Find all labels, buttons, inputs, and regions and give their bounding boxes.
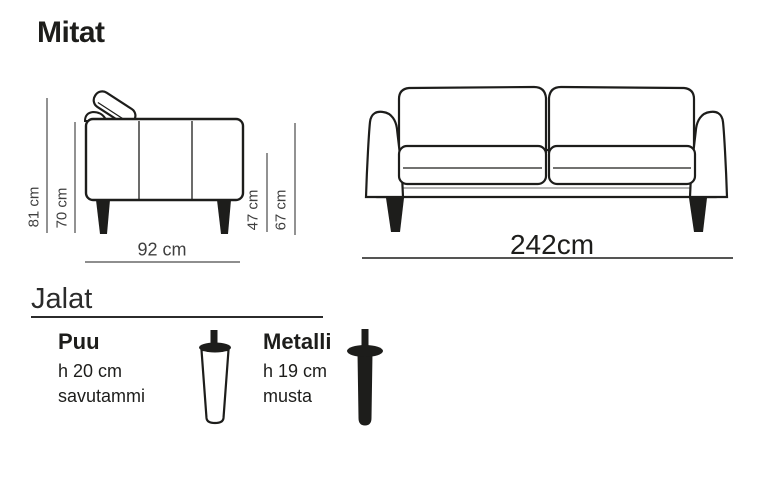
dimensions-page: Mitat 81 cm 70 cm 47 cm 67 cm 92 cm: [0, 0, 777, 502]
leg-option-finish: musta: [263, 387, 331, 405]
sofa-front-drawing: [0, 0, 777, 502]
wood-leg-icon: [197, 329, 233, 429]
leg-option-height: h 20 cm: [58, 362, 145, 380]
leg-option-name: Puu: [58, 331, 145, 353]
leg-option-wood: Puu h 20 cm savutammi: [58, 331, 145, 405]
leg-option-metal: Metalli h 19 cm musta: [263, 331, 331, 405]
leg-option-height: h 19 cm: [263, 362, 331, 380]
front-width-label: 242cm: [510, 229, 594, 261]
leg-option-finish: savutammi: [58, 387, 145, 405]
legs-section-divider: [31, 316, 323, 318]
metal-leg-icon: [345, 329, 385, 431]
legs-section-heading: Jalat: [31, 283, 92, 316]
leg-option-name: Metalli: [263, 331, 331, 353]
